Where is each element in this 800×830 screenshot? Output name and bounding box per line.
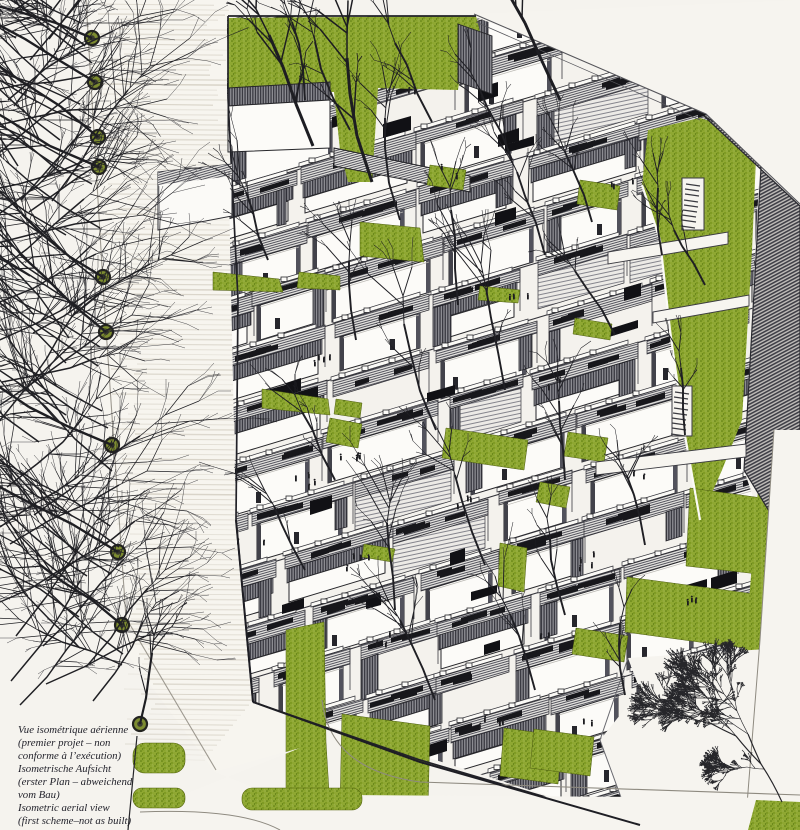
svg-text:(erster Plan – abweichend: (erster Plan – abweichend: [18, 776, 133, 788]
svg-text:(premier projet – non: (premier projet – non: [18, 737, 110, 749]
svg-text:Vue isométrique aérienne: Vue isométrique aérienne: [18, 724, 128, 736]
svg-text:Isometrische Aufsicht: Isometrische Aufsicht: [17, 763, 112, 775]
svg-text:Isometric aerial view: Isometric aerial view: [17, 802, 111, 814]
svg-text:vom Bau): vom Bau): [18, 789, 60, 801]
svg-text:(first scheme–not as built): (first scheme–not as built): [18, 815, 131, 827]
svg-text:conforme à l’exécution): conforme à l’exécution): [18, 750, 122, 762]
